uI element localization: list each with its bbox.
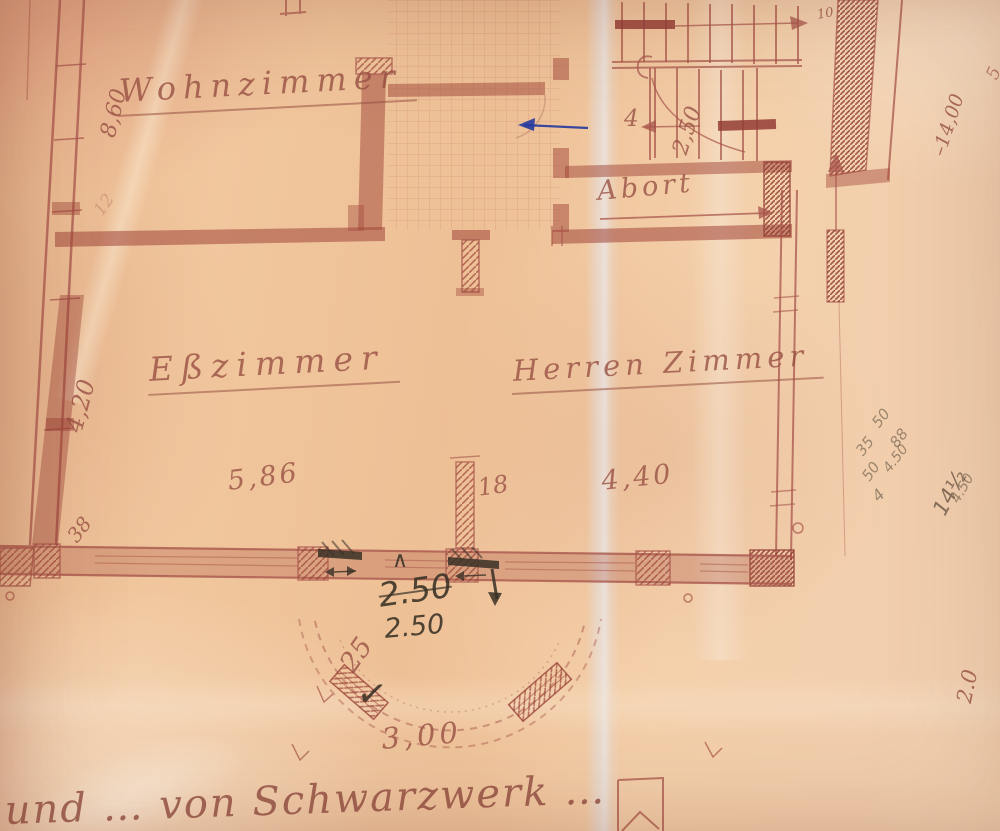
- dim-pier-column: [450, 456, 480, 548]
- center-pier: [452, 230, 490, 296]
- stair-count-label: 4: [624, 106, 639, 132]
- left-outer-wall: [0, 0, 86, 586]
- hall-tiled-floor: [388, 0, 560, 230]
- chimney-symbol: [618, 778, 663, 831]
- floorplan-scan: Wohnzimmer Eßzimmer Herren Zimmer Abort …: [0, 0, 1000, 831]
- dim-pier-width: 18: [476, 470, 510, 502]
- floorplan-drawing: [0, 0, 1000, 831]
- graphite-check: ✓: [354, 672, 390, 717]
- graphite-caret: ∧: [392, 548, 408, 573]
- graphite-bay-lower: 2.50: [383, 609, 446, 645]
- stair-top-note: 10: [816, 5, 835, 23]
- staircase: [612, 2, 808, 161]
- dim-bay-width: 3,00: [380, 715, 463, 756]
